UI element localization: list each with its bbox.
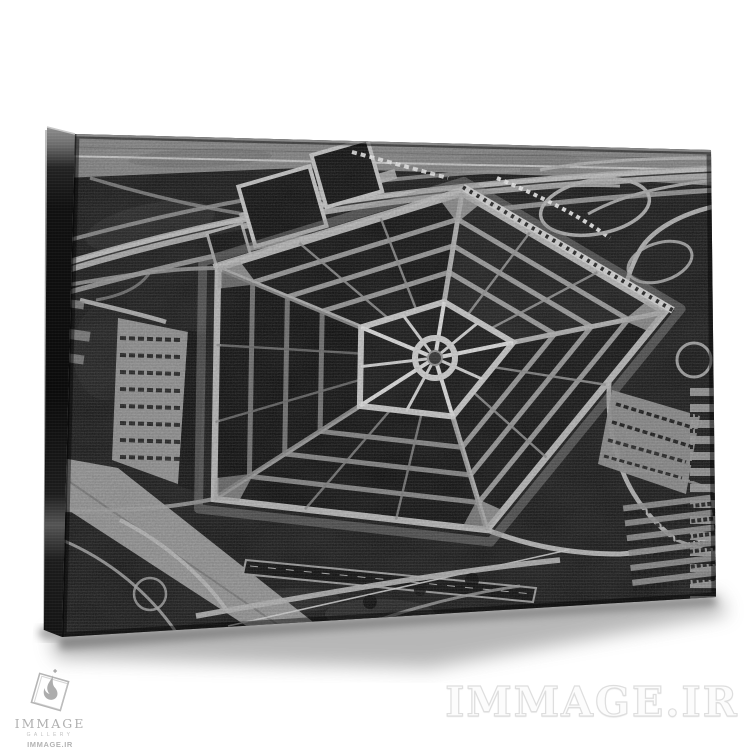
logo-mark [22, 666, 78, 718]
logo-domain-text: IMMAGE.IR [8, 740, 92, 749]
flame-icon [44, 669, 58, 700]
logo-brand-text: IMMAGE [8, 716, 92, 731]
product-mockup-page: IMMAGE.IR IMMAGE GALLERY IMMAGE.IR [0, 0, 750, 750]
brand-logo: IMMAGE GALLERY IMMAGE.IR [8, 666, 92, 749]
logo-subtitle-text: GALLERY [8, 732, 92, 738]
canvas-print-mockup [0, 0, 750, 750]
canvas-weave [55, 125, 725, 645]
aerial-photo [40, 120, 730, 650]
canvas-front-face [40, 120, 730, 650]
watermark-text: IMMAGE.IR [438, 680, 746, 724]
